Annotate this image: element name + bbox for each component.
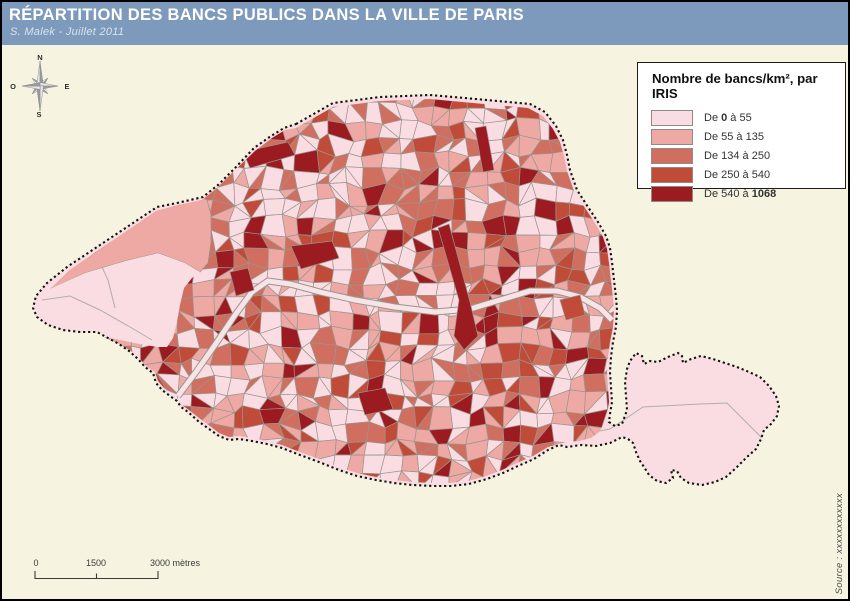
legend-swatch: [651, 110, 693, 126]
legend-item: De 540 à 1068: [651, 184, 835, 203]
legend-item: De 55 à 135: [651, 127, 835, 146]
legend-item: De 134 à 250: [651, 146, 835, 165]
iris-cell: [331, 374, 350, 399]
scale-label-zero: 0: [33, 558, 38, 568]
iris-cell: [497, 327, 522, 344]
compass-label-west: O: [10, 82, 16, 91]
iris-cell: [480, 363, 503, 379]
compass-label-east: E: [64, 82, 69, 91]
iris-cell: [502, 360, 521, 379]
legend-swatch: [651, 129, 693, 145]
iris-cell: [193, 296, 215, 317]
source-credit: Source : xxxxxxxxxxxx: [834, 493, 845, 594]
compass-label-north: N: [37, 53, 42, 62]
iris-cell: [329, 409, 348, 426]
iris-cell: [583, 374, 606, 392]
iris-cell: [467, 233, 486, 250]
iris-cell: [283, 363, 295, 378]
compass-label-south: S: [36, 110, 41, 119]
legend-swatch: [651, 148, 693, 164]
legend-items: De 0 à 55De 55 à 135De 134 à 250De 250 à…: [651, 108, 835, 203]
legend-item-label: De 55 à 135: [704, 131, 764, 143]
legend-item-label: De 250 à 540: [704, 169, 770, 181]
legend-item: De 0 à 55: [651, 108, 835, 127]
iris-cell: [400, 334, 419, 346]
iris-cell: [429, 407, 453, 431]
iris-cell: [268, 248, 285, 269]
legend-item-label: De 0 à 55: [704, 112, 752, 124]
iris-cell: [381, 153, 401, 168]
legend-item-label: De 540 à 1068: [704, 188, 776, 200]
legend-swatch: [651, 186, 693, 202]
legend-swatch: [651, 167, 693, 183]
iris-cell: [503, 425, 520, 443]
scale-label-mid: 1500: [86, 558, 106, 568]
iris-cell: [402, 455, 419, 472]
scale-label-max: 3000 mètres: [150, 558, 201, 568]
iris-cell: [438, 186, 454, 200]
iris-cell: [346, 422, 370, 443]
iris-cell: [364, 442, 385, 455]
iris-cell: [566, 390, 585, 414]
iris-cell: [519, 266, 537, 279]
iris-cell: [452, 198, 466, 220]
iris-cell: [416, 283, 439, 295]
legend-item: De 250 à 540: [651, 165, 835, 184]
poster-subtitle: S. Malek - Juillet 2011: [10, 26, 850, 38]
iris-cell: [378, 311, 402, 334]
iris-cell: [436, 281, 455, 295]
poster-title: RÉPARTITION DES BANCS PUBLICS DANS LA VI…: [0, 0, 850, 25]
iris-cell: [417, 334, 439, 346]
header-bar: RÉPARTITION DES BANCS PUBLICS DANS LA VI…: [0, 0, 850, 45]
legend-box: Nombre de bancs/km², par IRIS De 0 à 55D…: [637, 62, 846, 189]
iris-cell: [283, 266, 299, 281]
legend-title: Nombre de bancs/km², par IRIS: [652, 71, 835, 101]
iris-cell: [353, 314, 370, 331]
iris-cell: [453, 186, 465, 199]
iris-cell: [216, 250, 235, 268]
map-poster: N O E S 0 1500 3000 mètres RÉPARTITION D…: [0, 0, 850, 601]
iris-cell: [551, 423, 574, 443]
legend-item-label: De 134 à 250: [704, 150, 770, 162]
iris-cell: [297, 218, 314, 236]
